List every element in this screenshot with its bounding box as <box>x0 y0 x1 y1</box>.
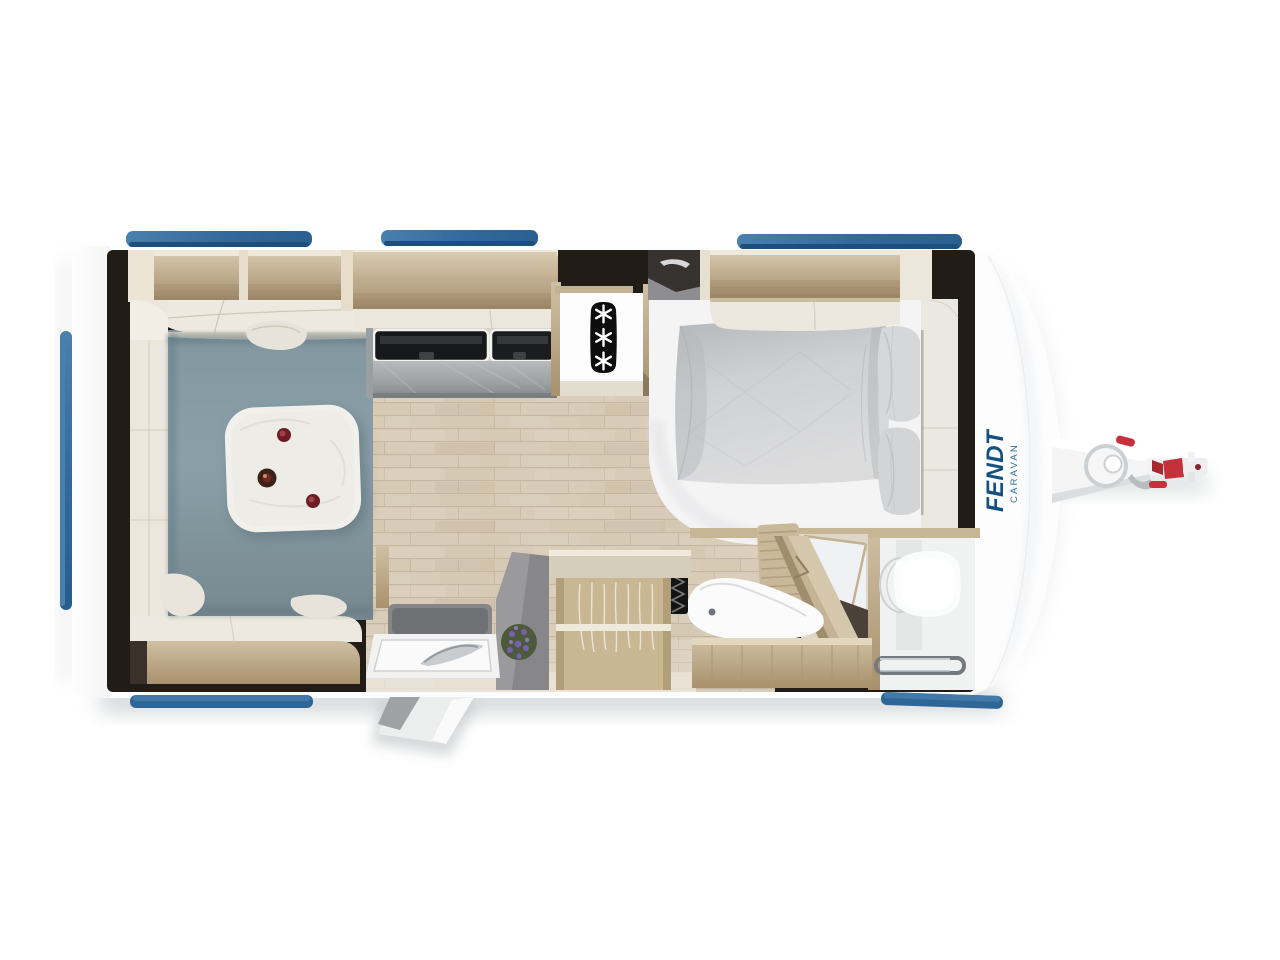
svg-text:FENDT: FENDT <box>982 428 1009 512</box>
svg-text:CARAVAN: CARAVAN <box>1009 443 1020 503</box>
